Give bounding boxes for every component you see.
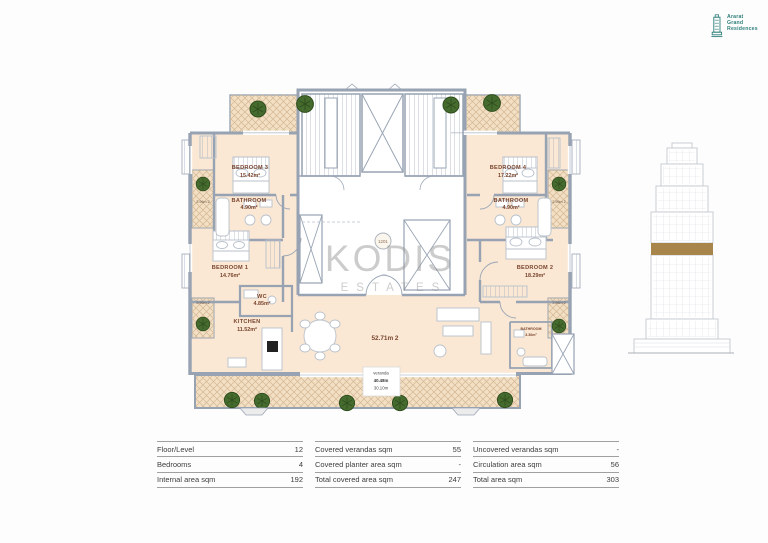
highlighted-floor-band xyxy=(651,243,713,255)
table-row: Uncovered verandas sqm - xyxy=(473,441,619,456)
room-label-bathroom-small: BATHROOM xyxy=(521,327,542,331)
room-label-kitchen: KITCHEN xyxy=(234,319,261,325)
room-area-bedroom1: 14.76m² xyxy=(220,273,240,279)
planter-label: 2.96m 2 xyxy=(196,301,209,305)
unit-number-badge: 1201 xyxy=(375,233,391,249)
room-area-bathroom-small: 3.36m² xyxy=(525,333,537,337)
row-value: 12 xyxy=(295,445,303,454)
living-area-label: 52.71m 2 xyxy=(371,335,398,342)
table-row: Covered verandas sqm 55 xyxy=(315,441,461,456)
summary-column-2: Covered verandas sqm 55 Covered planter … xyxy=(315,441,461,488)
table-row: Covered planter area sqm - xyxy=(315,456,461,471)
brand-logo: Ararat Grand Residences xyxy=(711,14,758,39)
page: BEDROOM 3 15.42m² BATHROOM 4.90m² BEDROO… xyxy=(0,0,768,543)
room-area-wc: 4.85m² xyxy=(253,301,270,307)
summary-table: Floor/Level 12 Bedrooms 4 Internal area … xyxy=(157,441,619,488)
table-row: Total area sqm 303 xyxy=(473,472,619,488)
row-label: Covered verandas sqm xyxy=(315,445,393,454)
row-value: - xyxy=(459,460,462,469)
veranda-label-line3: 30.10m xyxy=(374,386,389,391)
row-label: Covered planter area sqm xyxy=(315,460,402,469)
room-area-bathroom3: 4.90m² xyxy=(240,205,257,211)
summary-column-3: Uncovered verandas sqm - Circulation are… xyxy=(473,441,619,488)
veranda-label-line2: 40.48m xyxy=(374,378,389,383)
row-label: Bedrooms xyxy=(157,460,191,469)
table-row: Total covered area sqm 247 xyxy=(315,472,461,488)
room-label-bathroom4: BATHROOM xyxy=(494,198,529,204)
row-label: Total area sqm xyxy=(473,475,522,484)
planter-label: 2.96m 2 xyxy=(552,200,565,204)
building-icon xyxy=(711,14,723,39)
room-label-bedroom1: BEDROOM 1 xyxy=(212,265,249,271)
planter-label: 2.96m 2 xyxy=(196,200,209,204)
summary-column-1: Floor/Level 12 Bedrooms 4 Internal area … xyxy=(157,441,303,488)
brand-line-3: Residences xyxy=(727,26,758,32)
brand-name: Ararat Grand Residences xyxy=(727,14,758,33)
row-label: Total covered area sqm xyxy=(315,475,393,484)
row-value: 4 xyxy=(299,460,303,469)
room-area-bedroom2: 18.29m² xyxy=(525,273,545,279)
row-label: Internal area sqm xyxy=(157,475,215,484)
room-label-wc: WC xyxy=(257,294,267,300)
table-row: Floor/Level 12 xyxy=(157,441,303,456)
room-label-bedroom3: BEDROOM 3 xyxy=(232,165,269,171)
row-value: 56 xyxy=(611,460,619,469)
table-row: Internal area sqm 192 xyxy=(157,472,303,488)
room-label-bedroom4: BEDROOM 4 xyxy=(490,165,527,171)
planter-label: 2.96m 2 xyxy=(552,301,565,305)
veranda-label-line1: veranda xyxy=(373,371,389,376)
row-value: 247 xyxy=(448,475,461,484)
room-area-bedroom3: 15.42m² xyxy=(240,173,260,179)
veranda-label: veranda 40.48m 30.10m xyxy=(363,367,400,396)
row-value: 55 xyxy=(453,445,461,454)
table-row: Circulation area sqm 56 xyxy=(473,456,619,471)
room-area-bedroom4: 17.22m² xyxy=(498,173,518,179)
elevator-shaft xyxy=(362,94,403,172)
room-label-bathroom3: BATHROOM xyxy=(232,198,267,204)
unit-number: 1201 xyxy=(378,239,388,244)
table-row: Bedrooms 4 xyxy=(157,456,303,471)
row-label: Uncovered verandas sqm xyxy=(473,445,558,454)
building-elevation xyxy=(628,143,734,353)
row-label: Circulation area sqm xyxy=(473,460,542,469)
room-label-bedroom2: BEDROOM 2 xyxy=(517,265,554,271)
room-area-bathroom4: 4.90m² xyxy=(502,205,519,211)
row-value: - xyxy=(617,445,620,454)
row-value: 192 xyxy=(290,475,303,484)
row-label: Floor/Level xyxy=(157,445,194,454)
row-value: 303 xyxy=(606,475,619,484)
room-area-kitchen: 11.52m² xyxy=(237,327,257,333)
